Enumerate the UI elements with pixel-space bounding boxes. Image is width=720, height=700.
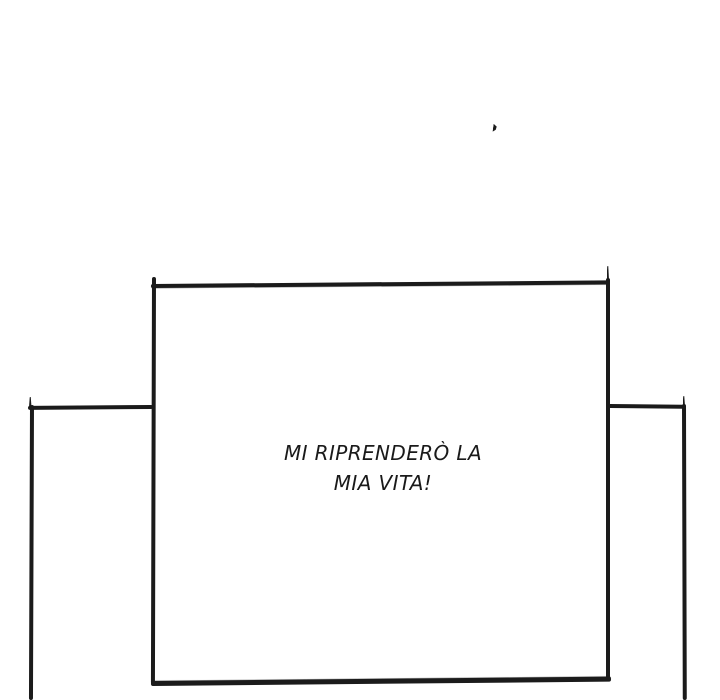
right-adjacent-panel-side-border: [682, 404, 687, 700]
speech-line-1: MI RIPRENDERÒ LA: [152, 438, 614, 468]
left-adjacent-panel-top-border: [28, 405, 153, 410]
ink-speck-mark: [492, 124, 497, 132]
right-adjacent-panel-top-border: [608, 404, 685, 409]
speech-text: MI RIPRENDERÒ LA MIA VITA!: [152, 438, 614, 498]
left-adjacent-panel-side-border: [29, 405, 34, 700]
speech-panel-top-border: [151, 280, 609, 288]
comic-page: MI RIPRENDERÒ LA MIA VITA!: [0, 0, 720, 700]
speech-line-2: MIA VITA!: [152, 468, 614, 498]
speech-panel-bottom-border: [151, 677, 611, 686]
